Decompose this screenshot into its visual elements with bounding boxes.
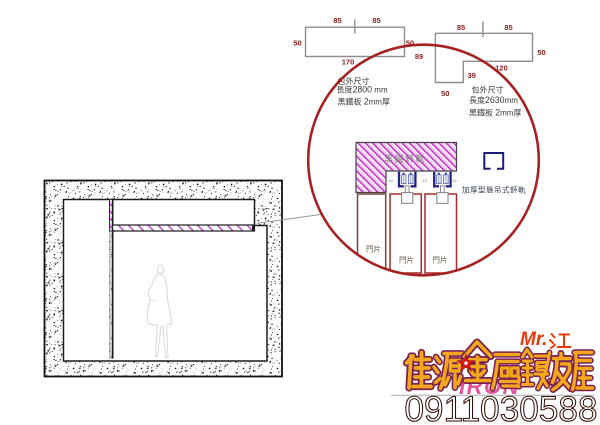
svg-text:170: 170	[342, 58, 355, 67]
svg-text:50: 50	[537, 48, 545, 57]
svg-text:長度2800 mm: 長度2800 mm	[337, 85, 388, 95]
svg-text:黑鐵鈈軌: 黑鐵鈈軌	[384, 153, 426, 164]
svg-text:門片: 門片	[433, 255, 448, 265]
svg-text:10: 10	[452, 178, 457, 183]
svg-text:包外尺寸: 包外尺寸	[472, 85, 504, 95]
svg-text:黑鐵板 2mm厚: 黑鐵板 2mm厚	[338, 97, 390, 107]
svg-text:長度2630mm: 長度2630mm	[469, 95, 518, 105]
svg-text:10: 10	[423, 178, 428, 183]
svg-text:黑鐵板 2mm厚: 黑鐵板 2mm厚	[469, 108, 521, 118]
svg-text:Mr.: Mr.	[520, 329, 547, 350]
svg-text:50: 50	[293, 39, 301, 48]
svg-text:89: 89	[415, 52, 423, 61]
svg-text:門片: 門片	[399, 255, 414, 265]
svg-text:85: 85	[372, 16, 380, 25]
svg-text:85: 85	[504, 23, 512, 32]
svg-text:0911030588: 0911030588	[404, 390, 597, 425]
svg-text:39: 39	[468, 71, 476, 80]
svg-text:加厚型懸吊式鈈軌: 加厚型懸吊式鈈軌	[462, 185, 526, 195]
svg-text:85: 85	[333, 16, 341, 25]
svg-text:50: 50	[441, 89, 449, 98]
svg-text:10: 10	[389, 178, 394, 183]
svg-text:門片: 門片	[366, 244, 381, 254]
svg-text:85: 85	[457, 23, 465, 32]
